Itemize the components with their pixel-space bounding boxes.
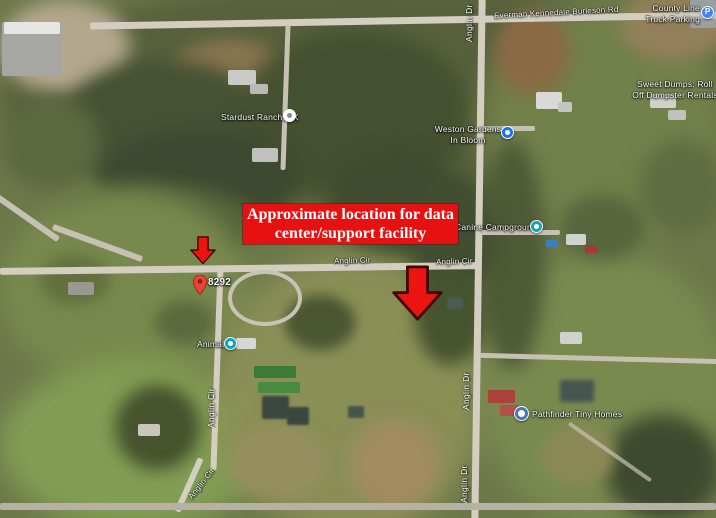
parking-icon-letter: P bbox=[705, 7, 710, 16]
road-label-anglin-cir-vertical: Anglin Cir bbox=[206, 366, 220, 428]
terrain-patch bbox=[348, 406, 364, 418]
animal-clinic-icon[interactable] bbox=[224, 337, 237, 350]
terrain-patch bbox=[236, 338, 256, 349]
locality-icon-dot bbox=[287, 113, 292, 118]
weston-line2: In Bloom bbox=[450, 135, 485, 145]
road-label-anglin-cir-1: Anglin Cir bbox=[334, 255, 371, 267]
terrain-patch bbox=[258, 382, 300, 393]
terrain-patch bbox=[287, 407, 309, 425]
sweet-dumps-line2: Off Dumpster Rentals bbox=[632, 90, 716, 100]
place-label-weston-gardens[interactable]: Weston Gardens In Bloom bbox=[430, 124, 506, 146]
terrain-patch bbox=[4, 22, 60, 34]
terrain-patch bbox=[540, 425, 615, 485]
parking-icon[interactable]: P bbox=[701, 6, 714, 19]
sweet-dumps-line1: Sweet Dumps: Roll bbox=[637, 79, 713, 89]
road-bottom bbox=[0, 503, 716, 510]
county-line-line2: Truck Parking bbox=[645, 14, 700, 24]
place-label-canine-campgrounds[interactable]: Canine Campgrounds bbox=[455, 222, 541, 233]
campground-icon[interactable] bbox=[530, 220, 543, 233]
campground-icon-dot bbox=[534, 224, 539, 229]
garden-center-icon-dot bbox=[505, 130, 510, 135]
terrain-patch bbox=[228, 70, 256, 85]
lodging-icon-dot bbox=[518, 410, 525, 417]
road-driveway-loop bbox=[228, 270, 302, 326]
terrain-patch bbox=[640, 140, 716, 235]
terrain-patch bbox=[252, 148, 278, 162]
road-label-anglin-dr-top: Anglin Dr bbox=[464, 0, 478, 42]
terrain-patch bbox=[68, 282, 94, 295]
animal-clinic-icon-dot bbox=[228, 341, 233, 346]
terrain-patch bbox=[350, 420, 440, 510]
place-label-animal[interactable]: Animal bbox=[197, 339, 224, 350]
locality-icon-stardust[interactable] bbox=[283, 109, 296, 122]
place-label-pathfinder[interactable]: Pathfinder Tiny Homes bbox=[532, 409, 622, 420]
terrain-patch bbox=[230, 425, 325, 500]
annotation-banner: Approximate location for data center/sup… bbox=[243, 204, 458, 244]
county-line-line1: County Line bbox=[652, 3, 700, 13]
address-pin-label: 8292 bbox=[208, 277, 231, 288]
road-label-anglin-dr-mid: Anglin Dr bbox=[461, 352, 475, 410]
terrain-patch bbox=[560, 332, 582, 344]
terrain-patch bbox=[566, 234, 586, 245]
terrain-patch bbox=[560, 195, 645, 260]
annotation-arrow-large bbox=[390, 265, 445, 322]
place-label-sweet-dumps[interactable]: Sweet Dumps: Roll Off Dumpster Rentals bbox=[600, 79, 716, 101]
terrain-patch bbox=[585, 245, 598, 253]
weston-line1: Weston Gardens bbox=[435, 124, 501, 134]
terrain-patch bbox=[447, 297, 463, 309]
terrain-patch bbox=[138, 424, 160, 436]
terrain-patch bbox=[488, 390, 515, 403]
terrain-patch bbox=[558, 102, 572, 112]
garden-center-icon[interactable] bbox=[501, 126, 514, 139]
terrain-patch bbox=[262, 396, 289, 419]
place-label-county-line[interactable]: County Line Truck Parking bbox=[628, 3, 700, 25]
terrain-patch bbox=[546, 240, 558, 247]
terrain-patch bbox=[0, 95, 100, 190]
terrain-patch bbox=[40, 255, 110, 305]
terrain-patch bbox=[250, 84, 268, 94]
lodging-icon-pathfinder[interactable] bbox=[514, 406, 529, 421]
satellite-map[interactable]: Everman Kennedale Burleson Rd Anglin Cir… bbox=[0, 0, 716, 518]
terrain-patch bbox=[560, 380, 594, 402]
terrain-patch bbox=[495, 10, 570, 95]
banner-line2: center/support facility bbox=[243, 224, 458, 243]
terrain-patch bbox=[254, 366, 296, 378]
banner-line1: Approximate location for data bbox=[243, 205, 458, 224]
road-label-anglin-dr-bottom: Anglin Dr bbox=[459, 447, 473, 503]
terrain-patch bbox=[668, 110, 686, 120]
address-pin-icon[interactable] bbox=[193, 275, 207, 295]
annotation-arrow-small bbox=[189, 231, 217, 270]
